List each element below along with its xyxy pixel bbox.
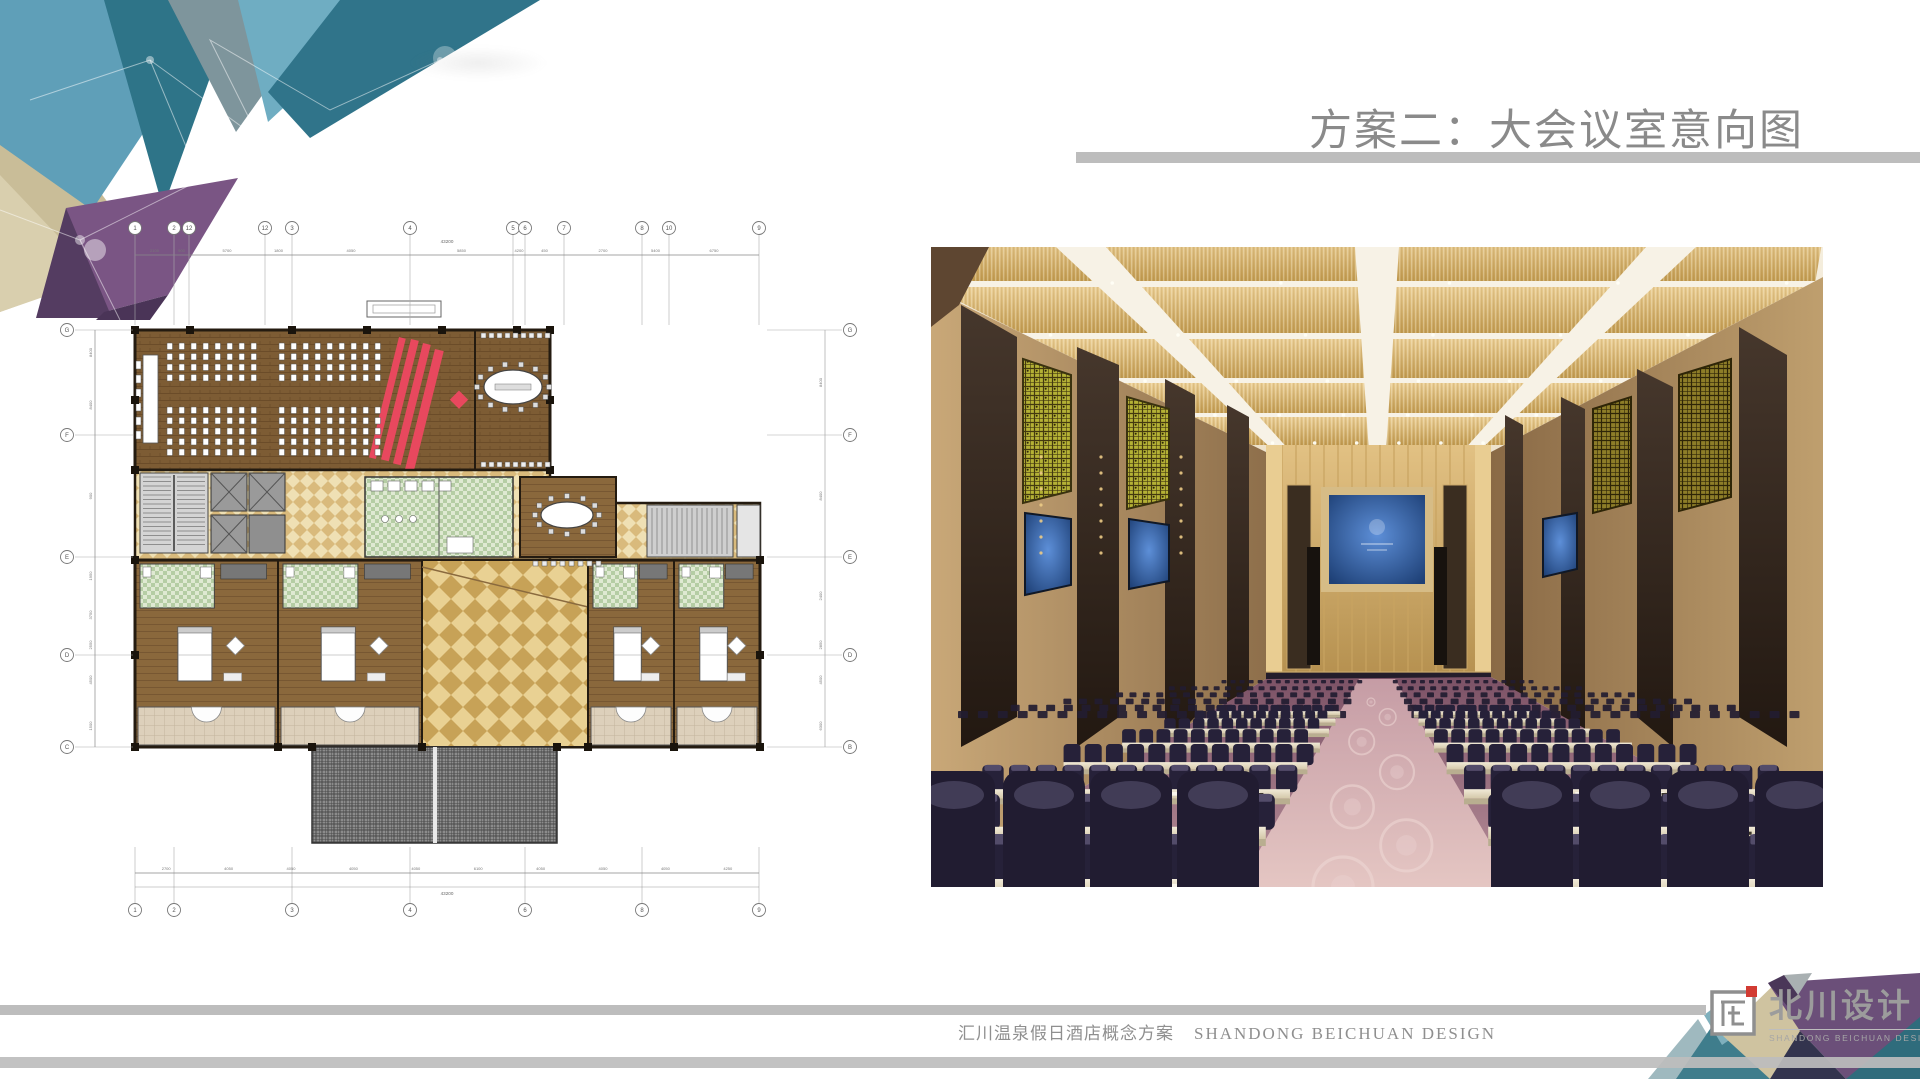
svg-text:6300: 6300 [818,721,823,731]
svg-text:4500: 4500 [88,675,93,685]
page-title: 方案二：大会议室意向图 [1309,96,1804,158]
svg-text:43200: 43200 [441,239,454,244]
floor-plan-drawing: 1212123456781092100900570018004050585042… [55,215,865,925]
svg-text:4050: 4050 [661,866,671,871]
svg-text:4200: 4200 [515,248,525,253]
svg-text:4050: 4050 [599,866,609,871]
svg-text:1800: 1800 [274,248,284,253]
svg-text:6750: 6750 [710,248,720,253]
svg-text:43200: 43200 [441,891,454,896]
svg-text:2100: 2100 [150,248,160,253]
svg-text:450: 450 [541,248,548,253]
faint-watermark-smudge [408,46,548,80]
title-underline [1076,152,1920,163]
svg-text:10: 10 [666,226,673,232]
footer-bar-bottom [0,1057,1920,1068]
svg-text:8400: 8400 [88,400,93,410]
footer-text: 汇川温泉假日酒店概念方案SHANDONG BEICHUAN DESIGN [958,1019,1496,1044]
logo-icon [1710,986,1762,1038]
footer-bar-top [0,1005,1706,1015]
company-logo: 北川设计 SHANDONG BEICHUAN DESIGN [1710,986,1920,1043]
svg-text:2700: 2700 [162,866,172,871]
svg-text:8400: 8400 [818,377,823,387]
svg-text:1950: 1950 [88,571,93,581]
svg-text:900: 900 [88,492,93,499]
logo-name-cn: 北川设计 [1769,986,1920,1026]
logo-subtitle-en: SHANDONG BEICHUAN DESIGN [1769,1029,1920,1043]
svg-text:4050: 4050 [224,866,234,871]
svg-text:5850: 5850 [457,248,467,253]
svg-text:12: 12 [186,226,193,232]
svg-text:2400: 2400 [818,591,823,601]
hall-rendering [931,247,1823,887]
svg-text:D: D [65,653,70,659]
conference-hall-photo [931,247,1823,887]
svg-text:E: E [848,555,852,561]
svg-text:900: 900 [178,248,185,253]
svg-text:2850: 2850 [818,640,823,650]
svg-text:4050: 4050 [349,866,359,871]
plan-rooms [131,301,764,843]
svg-text:4250: 4250 [723,866,733,871]
svg-text:4050: 4050 [536,866,546,871]
svg-text:1500: 1500 [88,721,93,731]
svg-text:E: E [65,555,69,561]
svg-text:D: D [848,653,853,659]
svg-text:4500: 4500 [818,675,823,685]
svg-text:G: G [65,328,70,334]
footer-project-name: 汇川温泉假日酒店概念方案 [958,1024,1174,1043]
svg-text:4050: 4050 [287,866,297,871]
svg-text:G: G [848,328,853,334]
svg-text:4050: 4050 [411,866,421,871]
svg-text:2550: 2550 [88,640,93,650]
svg-text:4050: 4050 [347,248,357,253]
footer-studio-name: SHANDONG BEICHUAN DESIGN [1194,1024,1496,1043]
svg-text:6100: 6100 [474,866,484,871]
svg-text:B: B [848,745,852,751]
svg-text:8400: 8400 [818,491,823,501]
svg-text:F: F [848,433,852,439]
svg-text:2700: 2700 [599,248,609,253]
svg-text:12: 12 [262,226,269,232]
svg-text:8400: 8400 [88,347,93,357]
logo-red-square [1746,986,1757,997]
svg-text:F: F [65,433,69,439]
svg-text:5400: 5400 [651,248,661,253]
svg-text:C: C [65,745,70,751]
svg-text:3750: 3750 [88,610,93,620]
svg-text:5700: 5700 [223,248,233,253]
